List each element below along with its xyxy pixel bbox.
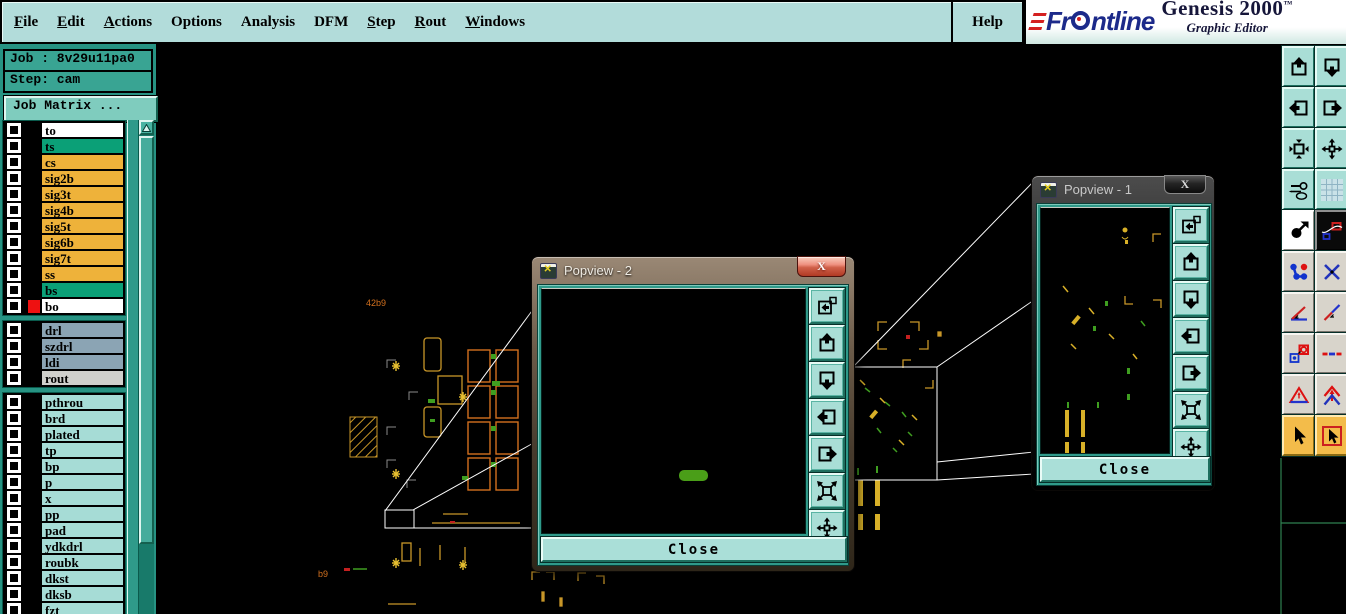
layer-name[interactable]: ydkdrl — [42, 539, 123, 553]
layer-name[interactable]: dkst — [42, 571, 123, 585]
select-cursor-icon — [1288, 425, 1310, 447]
layer-group: pthroubrdplatedtpbppxpppadydkdrlroubkdks… — [2, 392, 126, 614]
layer-visibility-checkbox[interactable] — [7, 587, 21, 601]
measure-angle-icon — [1288, 302, 1310, 324]
menu-actions[interactable]: Actions — [104, 14, 152, 31]
layer-visibility-checkbox[interactable] — [7, 171, 21, 185]
delete-cross-icon — [1321, 261, 1343, 283]
layer-color-swatch[interactable] — [28, 412, 40, 425]
layer-visibility-checkbox[interactable] — [7, 523, 21, 537]
layer-name[interactable]: pthrou — [42, 395, 123, 409]
layer-color-swatch[interactable] — [28, 220, 40, 233]
layer-color-swatch[interactable] — [28, 524, 40, 537]
layer-row-ss: ss — [5, 267, 123, 281]
new-popview-button[interactable] — [809, 288, 845, 324]
layer-row-fzt: fzt — [5, 603, 123, 614]
layer-row-x: x — [5, 491, 123, 505]
right-toolbar — [1281, 45, 1346, 457]
pan-down-button[interactable] — [1173, 281, 1209, 317]
pan-up-button[interactable] — [809, 325, 845, 361]
layer-color-swatch[interactable] — [28, 356, 40, 369]
zoom-out-icon — [816, 480, 838, 502]
layer-row-pthrou: pthrou — [5, 395, 123, 409]
triangle-marker-icon — [1288, 384, 1310, 406]
trademark: ™ — [1283, 0, 1293, 9]
layer-row-plated: plated — [5, 427, 123, 441]
zoom-center-icon — [1180, 436, 1202, 458]
pan-down-button[interactable] — [1315, 46, 1346, 87]
copy-pad-icon — [1288, 343, 1310, 365]
layer-visibility-checkbox[interactable] — [7, 235, 21, 249]
layer-row-drl: drl — [5, 323, 123, 337]
popview-1-side-buttons — [1173, 207, 1209, 465]
layer-visibility-checkbox[interactable] — [7, 187, 21, 201]
menu-step[interactable]: Step — [367, 14, 395, 31]
layer-row-bs: bs — [5, 283, 123, 297]
layer-scrollbar[interactable] — [139, 120, 154, 614]
layer-color-swatch[interactable] — [28, 428, 40, 441]
layer-row-roubk: roubk — [5, 555, 123, 569]
popview-2-close-x-button[interactable]: X — [797, 256, 846, 277]
select-area-button[interactable] — [1315, 415, 1346, 456]
scroll-up-button[interactable] — [139, 120, 154, 135]
layer-name[interactable]: sig6b — [42, 235, 123, 249]
layer-visibility-checkbox[interactable] — [7, 251, 21, 265]
pan-down-icon — [1180, 288, 1202, 310]
popview-2-window[interactable]: Popview - 2 X Close — [531, 256, 855, 572]
pan-right-button[interactable] — [1173, 355, 1209, 391]
pan-left-icon — [1288, 97, 1310, 119]
layer-color-swatch[interactable] — [28, 492, 40, 505]
layer-color-swatch[interactable] — [28, 460, 40, 473]
pan-up-icon — [816, 332, 838, 354]
frontline-o-icon — [1071, 11, 1090, 30]
layer-color-swatch[interactable] — [28, 572, 40, 585]
layer-visibility-checkbox[interactable] — [7, 203, 21, 217]
product-subtitle: Graphic Editor — [1161, 20, 1293, 36]
frontline-bars-icon — [1028, 13, 1047, 30]
layer-visibility-checkbox[interactable] — [7, 555, 21, 569]
pan-right-icon — [1180, 362, 1202, 384]
layer-group: drlszdrlldirout — [2, 320, 126, 388]
zoom-center-icon — [816, 517, 838, 539]
step-label: Step: cam — [5, 70, 151, 91]
zoom-fit-button[interactable] — [1282, 128, 1315, 169]
popview-2-canvas[interactable] — [541, 288, 806, 534]
layer-visibility-checkbox[interactable] — [7, 123, 21, 137]
layer-group: totscssig2bsig3tsig4bsig5tsig6bsig7tssbs… — [2, 120, 126, 316]
layer-row-sig7t: sig7t — [5, 251, 123, 265]
pan-right-button[interactable] — [1315, 87, 1346, 128]
highlighted-pad — [679, 470, 708, 481]
layer-row-sig3t: sig3t — [5, 187, 123, 201]
layer-color-swatch[interactable] — [28, 188, 40, 201]
select-area-icon — [1321, 425, 1343, 447]
layer-row-to: to — [5, 123, 123, 137]
layer-name[interactable]: pad — [42, 523, 123, 537]
layer-visibility-checkbox[interactable] — [7, 139, 21, 153]
popview-window-icon — [1040, 182, 1057, 198]
layer-name[interactable]: brd — [42, 411, 123, 425]
layer-visibility-checkbox[interactable] — [7, 571, 21, 585]
menu-bar: FileEditActionsOptionsAnalysisDFMStepRou… — [0, 0, 1024, 44]
layer-color-swatch[interactable] — [28, 300, 40, 313]
layer-color-swatch[interactable] — [28, 556, 40, 569]
layer-row-szdrl: szdrl — [5, 339, 123, 353]
move-object-icon — [1288, 220, 1310, 242]
menu-windows[interactable]: Windows — [465, 14, 525, 31]
layer-row-sig6b: sig6b — [5, 235, 123, 249]
pan-up-icon — [1288, 56, 1310, 78]
layer-name[interactable]: sig4b — [42, 203, 123, 217]
pan-right-icon — [1321, 97, 1343, 119]
popview-window-icon — [540, 263, 557, 279]
layer-row-sig2b: sig2b — [5, 171, 123, 185]
grid-button[interactable] — [1315, 169, 1346, 210]
layer-row-bo: bo — [5, 299, 123, 313]
layer-name[interactable]: bo — [42, 299, 123, 313]
layer-color-swatch[interactable] — [28, 124, 40, 137]
layer-color-swatch[interactable] — [28, 252, 40, 265]
layer-name[interactable]: ts — [42, 139, 123, 153]
pan-left-button[interactable] — [1282, 87, 1315, 128]
layer-color-swatch[interactable] — [28, 340, 40, 353]
layer-color-swatch[interactable] — [28, 444, 40, 457]
delete-cross-button[interactable] — [1315, 251, 1346, 292]
measure-distance-button[interactable] — [1315, 292, 1346, 333]
pan-left-icon — [816, 406, 838, 428]
pan-down-icon — [1321, 56, 1343, 78]
layer-row-bp: bp — [5, 459, 123, 473]
new-popview-button[interactable] — [1173, 207, 1209, 243]
up-arrow-icon — [142, 124, 151, 132]
zoom-out-button[interactable] — [809, 473, 845, 509]
pan-up-button[interactable] — [1282, 46, 1315, 87]
measure-angle-button[interactable] — [1282, 292, 1315, 333]
layer-name[interactable]: drl — [42, 323, 123, 337]
pan-up-button[interactable] — [1173, 244, 1209, 280]
layer-color-swatch[interactable] — [28, 156, 40, 169]
zoom-center-icon — [1321, 138, 1343, 160]
pan-right-icon — [816, 443, 838, 465]
layer-visibility-checkbox[interactable] — [7, 267, 21, 281]
layer-color-swatch[interactable] — [28, 372, 40, 385]
layer-visibility-checkbox[interactable] — [7, 323, 21, 337]
layer-name[interactable]: tp — [42, 443, 123, 457]
layer-row-rout: rout — [5, 371, 123, 385]
menu-rout[interactable]: Rout — [415, 14, 447, 31]
layer-name[interactable]: sig5t — [42, 219, 123, 233]
layer-color-swatch[interactable] — [28, 284, 40, 297]
layer-row-ldi: ldi — [5, 355, 123, 369]
layer-visibility-checkbox[interactable] — [7, 411, 21, 425]
zoom-center-button[interactable] — [1315, 128, 1346, 169]
layer-name[interactable]: pp — [42, 507, 123, 521]
layer-visibility-checkbox[interactable] — [7, 339, 21, 353]
popview-1-title: Popview - 1 — [1064, 182, 1132, 197]
layer-color-swatch[interactable] — [28, 172, 40, 185]
layer-name[interactable]: sig7t — [42, 251, 123, 265]
arrow-marker-button[interactable] — [1315, 374, 1346, 415]
layer-name[interactable]: x — [42, 491, 123, 505]
scrollbar-thumb[interactable] — [139, 136, 154, 544]
graphic-shapes-button[interactable] — [1315, 210, 1346, 251]
layer-color-swatch[interactable] — [28, 604, 40, 614]
setup-tools-button[interactable] — [1282, 169, 1315, 210]
job-label: Job : 8v29u11pa0 — [5, 51, 151, 70]
layer-name[interactable]: sig3t — [42, 187, 123, 201]
layer-color-swatch[interactable] — [28, 204, 40, 217]
move-object-button[interactable] — [1282, 210, 1315, 251]
layer-color-swatch[interactable] — [28, 508, 40, 521]
netlist-icon — [1288, 261, 1310, 283]
layer-name[interactable]: szdrl — [42, 339, 123, 353]
frontline-logo: Frntline — [1031, 6, 1154, 37]
popview-2-side-buttons — [809, 288, 845, 546]
layer-name[interactable]: sig2b — [42, 171, 123, 185]
pan-down-button[interactable] — [809, 362, 845, 398]
layer-color-swatch[interactable] — [28, 268, 40, 281]
layer-visibility-checkbox[interactable] — [7, 283, 21, 297]
layer-row-pad: pad — [5, 523, 123, 537]
layer-name[interactable]: cs — [42, 155, 123, 169]
layer-visibility-checkbox[interactable] — [7, 355, 21, 369]
menu-items: FileEditActionsOptionsAnalysisDFMStepRou… — [2, 14, 525, 31]
layer-visibility-checkbox[interactable] — [7, 155, 21, 169]
popview-2-title: Popview - 2 — [564, 263, 632, 278]
zoom-out-button[interactable] — [1173, 392, 1209, 428]
layer-visibility-checkbox[interactable] — [7, 371, 21, 385]
layer-color-swatch[interactable] — [28, 540, 40, 553]
layer-name[interactable]: fzt — [42, 603, 123, 614]
graphic-shapes-icon — [1321, 220, 1343, 242]
product-name: Genesis 2000 — [1161, 0, 1283, 20]
layer-color-swatch[interactable] — [28, 588, 40, 601]
pan-up-icon — [1180, 251, 1202, 273]
branding-area: Frntline Genesis 2000™ Graphic Editor — [1024, 0, 1346, 44]
layer-color-swatch[interactable] — [28, 396, 40, 409]
measure-distance-icon — [1321, 302, 1343, 324]
triangle-marker-button[interactable] — [1282, 374, 1315, 415]
popview-1-canvas[interactable] — [1040, 207, 1170, 454]
job-info-box: Job : 8v29u11pa0 Step: cam — [3, 49, 153, 93]
new-popview-icon — [816, 295, 838, 317]
layer-row-cs: cs — [5, 155, 123, 169]
new-popview-icon — [1180, 214, 1202, 236]
layer-row-tp: tp — [5, 443, 123, 457]
layer-color-swatch[interactable] — [28, 324, 40, 337]
panel-edge-strip — [127, 120, 139, 614]
layer-visibility-checkbox[interactable] — [7, 219, 21, 233]
layer-name[interactable]: bs — [42, 283, 123, 297]
layer-visibility-checkbox[interactable] — [7, 491, 21, 505]
layer-row-p: p — [5, 475, 123, 489]
layer-row-pp: pp — [5, 507, 123, 521]
product-branding: Genesis 2000™ Graphic Editor — [1161, 0, 1293, 36]
canvas-label-bottom: b9 — [318, 569, 328, 579]
layer-visibility-checkbox[interactable] — [7, 395, 21, 409]
popview-1-art — [1041, 208, 1169, 453]
layer-name[interactable]: roubk — [42, 555, 123, 569]
frontline-wordmark: Frntline — [1046, 6, 1154, 37]
pan-right-button[interactable] — [809, 436, 845, 472]
arrow-marker-icon — [1321, 384, 1343, 406]
layer-name[interactable]: ss — [42, 267, 123, 281]
grid-icon — [1321, 179, 1343, 201]
popview-1-body: Close — [1036, 203, 1212, 486]
layer-visibility-checkbox[interactable] — [7, 603, 21, 614]
layer-name[interactable]: dksb — [42, 587, 123, 601]
layer-name[interactable]: rout — [42, 371, 123, 385]
pan-left-button[interactable] — [809, 399, 845, 435]
pan-down-icon — [816, 369, 838, 391]
popview-1-window[interactable]: Popview - 1 X — [1031, 175, 1215, 491]
popview-1-close-x-button[interactable]: X — [1164, 175, 1206, 194]
layer-name[interactable]: ldi — [42, 355, 123, 369]
layer-row-dksb: dksb — [5, 587, 123, 601]
layer-row-brd: brd — [5, 411, 123, 425]
menu-edit[interactable]: Edit — [57, 14, 85, 31]
layer-row-sig5t: sig5t — [5, 219, 123, 233]
menu-analysis[interactable]: Analysis — [241, 14, 295, 31]
zoom-fit-icon — [1288, 138, 1310, 160]
layer-visibility-checkbox[interactable] — [7, 459, 21, 473]
layer-list: totscssig2bsig3tsig4bsig5tsig6bsig7tssbs… — [2, 120, 126, 614]
setup-tools-icon — [1288, 179, 1310, 201]
side-panel: Job : 8v29u11pa0 Step: cam Job Matrix ..… — [0, 44, 156, 614]
canvas-label-top: 42b9 — [366, 298, 386, 308]
layer-name[interactable]: to — [42, 123, 123, 137]
layer-row-ts: ts — [5, 139, 123, 153]
dashed-line-button[interactable] — [1315, 333, 1346, 374]
layer-row-dkst: dkst — [5, 571, 123, 585]
job-matrix-button[interactable]: Job Matrix ... — [4, 96, 158, 122]
menu-dfm[interactable]: DFM — [314, 14, 348, 31]
layer-color-swatch[interactable] — [28, 476, 40, 489]
menu-help[interactable]: Help — [951, 2, 1022, 42]
menu-file[interactable]: File — [14, 14, 38, 31]
layer-color-swatch[interactable] — [28, 236, 40, 249]
layer-visibility-checkbox[interactable] — [7, 475, 21, 489]
layer-visibility-checkbox[interactable] — [7, 443, 21, 457]
popview-1-titlebar[interactable]: Popview - 1 X — [1032, 176, 1214, 203]
select-cursor-button[interactable] — [1282, 415, 1315, 456]
layer-name[interactable]: bp — [42, 459, 123, 473]
layer-row-ydkdrl: ydkdrl — [5, 539, 123, 553]
layer-name[interactable]: p — [42, 475, 123, 489]
popview-2-body: Close — [537, 284, 849, 566]
netlist-button[interactable] — [1282, 251, 1315, 292]
layer-visibility-checkbox[interactable] — [7, 539, 21, 553]
layer-visibility-checkbox[interactable] — [7, 427, 21, 441]
application-window: FileEditActionsOptionsAnalysisDFMStepRou… — [0, 0, 1346, 614]
layer-visibility-checkbox[interactable] — [7, 507, 21, 521]
zoom-out-icon — [1180, 399, 1202, 421]
dashed-line-icon — [1321, 343, 1343, 365]
layer-row-sig4b: sig4b — [5, 203, 123, 217]
layer-visibility-checkbox[interactable] — [7, 299, 21, 313]
layer-color-swatch[interactable] — [28, 140, 40, 153]
popview-2-titlebar[interactable]: Popview - 2 X — [532, 257, 854, 284]
popview-1-close-button[interactable]: Close — [1040, 457, 1210, 482]
pan-left-icon — [1180, 325, 1202, 347]
copy-pad-button[interactable] — [1282, 333, 1315, 374]
popview-2-close-button[interactable]: Close — [541, 537, 847, 562]
pan-left-button[interactable] — [1173, 318, 1209, 354]
layer-name[interactable]: plated — [42, 427, 123, 441]
menu-options[interactable]: Options — [171, 14, 222, 31]
